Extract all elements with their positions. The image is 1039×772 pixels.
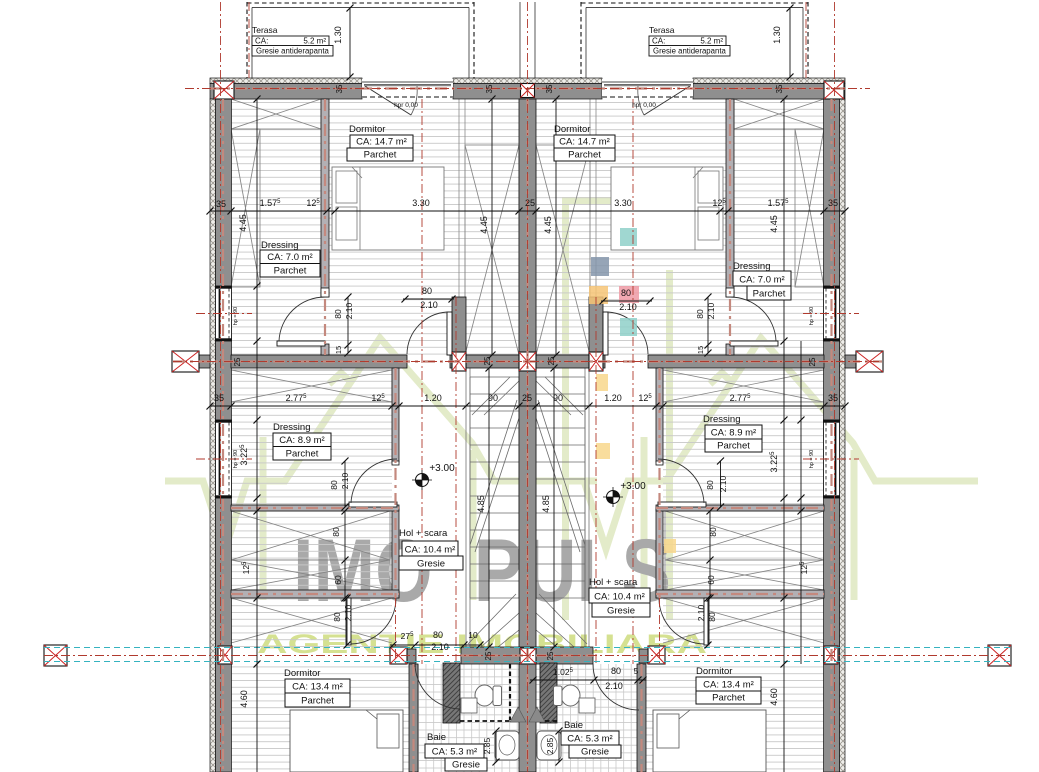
svg-text:2.85: 2.85 bbox=[545, 737, 555, 754]
svg-text:2.10: 2.10 bbox=[605, 681, 623, 691]
svg-text:Parchet: Parchet bbox=[717, 441, 750, 452]
svg-text:4.60: 4.60 bbox=[239, 690, 249, 708]
svg-text:Hol + scara: Hol + scara bbox=[399, 528, 448, 539]
svg-text:35: 35 bbox=[545, 84, 554, 93]
svg-text:15: 15 bbox=[334, 346, 343, 354]
svg-text:15: 15 bbox=[696, 346, 705, 354]
svg-text:CA: 13.4 m²: CA: 13.4 m² bbox=[703, 680, 754, 691]
svg-text:2.10: 2.10 bbox=[696, 604, 706, 621]
svg-text:35: 35 bbox=[485, 84, 494, 93]
svg-text:90: 90 bbox=[553, 393, 563, 403]
svg-text:25: 25 bbox=[547, 356, 556, 365]
svg-text:80: 80 bbox=[329, 480, 339, 490]
svg-text:2.10: 2.10 bbox=[344, 302, 354, 319]
svg-text:Parchet: Parchet bbox=[712, 693, 745, 704]
svg-text:1.20: 1.20 bbox=[604, 393, 622, 403]
svg-text:CA: 5.3 m²: CA: 5.3 m² bbox=[567, 734, 612, 745]
svg-text:Dormitor: Dormitor bbox=[284, 668, 320, 679]
svg-text:35: 35 bbox=[828, 393, 838, 403]
svg-text:Baie: Baie bbox=[564, 720, 583, 731]
svg-text:35: 35 bbox=[214, 393, 224, 403]
svg-text:5: 5 bbox=[634, 666, 639, 676]
svg-text:80: 80 bbox=[621, 288, 631, 298]
svg-text:35: 35 bbox=[828, 198, 838, 208]
svg-text:2.10: 2.10 bbox=[619, 302, 637, 312]
svg-text:80: 80 bbox=[333, 309, 343, 319]
svg-text:80: 80 bbox=[708, 527, 718, 537]
svg-text:3.30: 3.30 bbox=[412, 198, 430, 208]
svg-text:Dressing: Dressing bbox=[733, 261, 771, 272]
svg-text:Parchet: Parchet bbox=[274, 266, 307, 277]
svg-text:80: 80 bbox=[331, 527, 341, 537]
svg-text:hp = 90: hp = 90 bbox=[233, 450, 239, 469]
svg-text:Parchet: Parchet bbox=[301, 696, 334, 707]
svg-text:CA: 8.9 m²: CA: 8.9 m² bbox=[279, 435, 324, 446]
svg-text:2.10: 2.10 bbox=[420, 300, 438, 310]
svg-text:35: 35 bbox=[335, 84, 344, 93]
svg-text:Gresie antiderapanta: Gresie antiderapanta bbox=[256, 47, 329, 56]
svg-text:80: 80 bbox=[332, 612, 342, 622]
svg-text:Parchet: Parchet bbox=[753, 289, 786, 300]
svg-text:hp = 90: hp = 90 bbox=[809, 450, 815, 469]
svg-text:Gresie antiderapanta: Gresie antiderapanta bbox=[653, 47, 726, 56]
svg-text:4.45: 4.45 bbox=[479, 216, 489, 234]
svg-text:35: 35 bbox=[775, 84, 784, 93]
svg-text:4.60: 4.60 bbox=[769, 688, 779, 706]
svg-text:CA: 10.4 m²: CA: 10.4 m² bbox=[594, 592, 645, 603]
svg-text:hpr 0,00: hpr 0,00 bbox=[632, 102, 656, 109]
svg-text:Dormitor: Dormitor bbox=[554, 124, 590, 135]
svg-text:Dressing: Dressing bbox=[273, 422, 311, 433]
svg-text:Dormitor: Dormitor bbox=[696, 666, 732, 677]
svg-text:2.10: 2.10 bbox=[343, 604, 353, 621]
svg-text:Dormitor: Dormitor bbox=[349, 124, 385, 135]
svg-text:CA: 10.4 m²: CA: 10.4 m² bbox=[405, 545, 456, 556]
svg-text:Baie: Baie bbox=[427, 732, 446, 743]
svg-text:80: 80 bbox=[705, 480, 715, 490]
svg-text:2.10: 2.10 bbox=[706, 302, 716, 319]
svg-text:4.45: 4.45 bbox=[238, 214, 248, 232]
svg-text:CA: 7.0 m²: CA: 7.0 m² bbox=[739, 275, 784, 286]
svg-text:Hol + scara: Hol + scara bbox=[589, 577, 638, 588]
svg-text:CA:: CA: bbox=[652, 37, 665, 46]
svg-text:CA:: CA: bbox=[255, 37, 268, 46]
svg-text:80: 80 bbox=[707, 612, 717, 622]
svg-text:60: 60 bbox=[333, 575, 343, 585]
svg-text:25: 25 bbox=[546, 651, 555, 660]
svg-text:25: 25 bbox=[808, 357, 817, 366]
svg-text:80: 80 bbox=[433, 630, 443, 640]
svg-text:3.30: 3.30 bbox=[614, 198, 632, 208]
svg-text:CA: 13.4 m²: CA: 13.4 m² bbox=[292, 682, 343, 693]
svg-text:80: 80 bbox=[611, 666, 621, 676]
svg-text:Dressing: Dressing bbox=[703, 414, 741, 425]
svg-text:+3.00: +3.00 bbox=[620, 481, 646, 492]
svg-text:2.10: 2.10 bbox=[431, 642, 449, 652]
svg-text:Gresie: Gresie bbox=[607, 606, 635, 617]
svg-text:2.10: 2.10 bbox=[718, 475, 728, 492]
svg-text:Terasa: Terasa bbox=[252, 25, 278, 35]
svg-text:25: 25 bbox=[522, 393, 532, 403]
svg-text:CA: 14.7 m²: CA: 14.7 m² bbox=[356, 137, 407, 148]
svg-text:Parchet: Parchet bbox=[568, 150, 601, 161]
svg-text:Gresie: Gresie bbox=[452, 760, 480, 771]
svg-text:+3.00: +3.00 bbox=[429, 463, 455, 474]
svg-text:1.30: 1.30 bbox=[772, 26, 782, 44]
svg-text:CA: 7.0 m²: CA: 7.0 m² bbox=[267, 252, 312, 263]
svg-text:10: 10 bbox=[468, 630, 478, 640]
svg-text:25: 25 bbox=[525, 198, 535, 208]
svg-text:hp = 90: hp = 90 bbox=[233, 307, 239, 326]
svg-text:CA: 5.3 m²: CA: 5.3 m² bbox=[432, 747, 477, 758]
svg-text:Dressing: Dressing bbox=[261, 240, 299, 251]
svg-text:hp = 90: hp = 90 bbox=[809, 307, 815, 326]
svg-text:CA: 14.7 m²: CA: 14.7 m² bbox=[559, 137, 610, 148]
svg-text:25: 25 bbox=[233, 357, 242, 366]
svg-text:5.2 m²: 5.2 m² bbox=[700, 37, 723, 46]
svg-text:4.85: 4.85 bbox=[476, 495, 486, 513]
svg-text:Gresie: Gresie bbox=[417, 559, 445, 570]
svg-text:5.2 m²: 5.2 m² bbox=[303, 37, 326, 46]
svg-text:Parchet: Parchet bbox=[286, 449, 319, 460]
svg-text:4.85: 4.85 bbox=[541, 495, 551, 513]
svg-text:Parchet: Parchet bbox=[364, 150, 397, 161]
svg-text:90: 90 bbox=[488, 393, 498, 403]
svg-text:4.45: 4.45 bbox=[769, 215, 779, 233]
svg-text:CA: 8.9 m²: CA: 8.9 m² bbox=[711, 428, 756, 439]
svg-text:1.30: 1.30 bbox=[333, 26, 343, 44]
svg-text:4.45: 4.45 bbox=[543, 216, 553, 234]
svg-text:60: 60 bbox=[706, 575, 716, 585]
svg-text:1.20: 1.20 bbox=[424, 393, 442, 403]
svg-text:80: 80 bbox=[422, 286, 432, 296]
svg-text:35: 35 bbox=[216, 199, 226, 209]
svg-text:80: 80 bbox=[695, 309, 705, 319]
svg-text:hpr 0,00: hpr 0,00 bbox=[394, 102, 418, 109]
svg-text:25: 25 bbox=[484, 651, 493, 660]
svg-text:Gresie: Gresie bbox=[581, 747, 609, 758]
svg-text:2.10: 2.10 bbox=[340, 472, 350, 489]
svg-text:25: 25 bbox=[483, 356, 492, 365]
svg-text:Terasa: Terasa bbox=[649, 25, 675, 35]
